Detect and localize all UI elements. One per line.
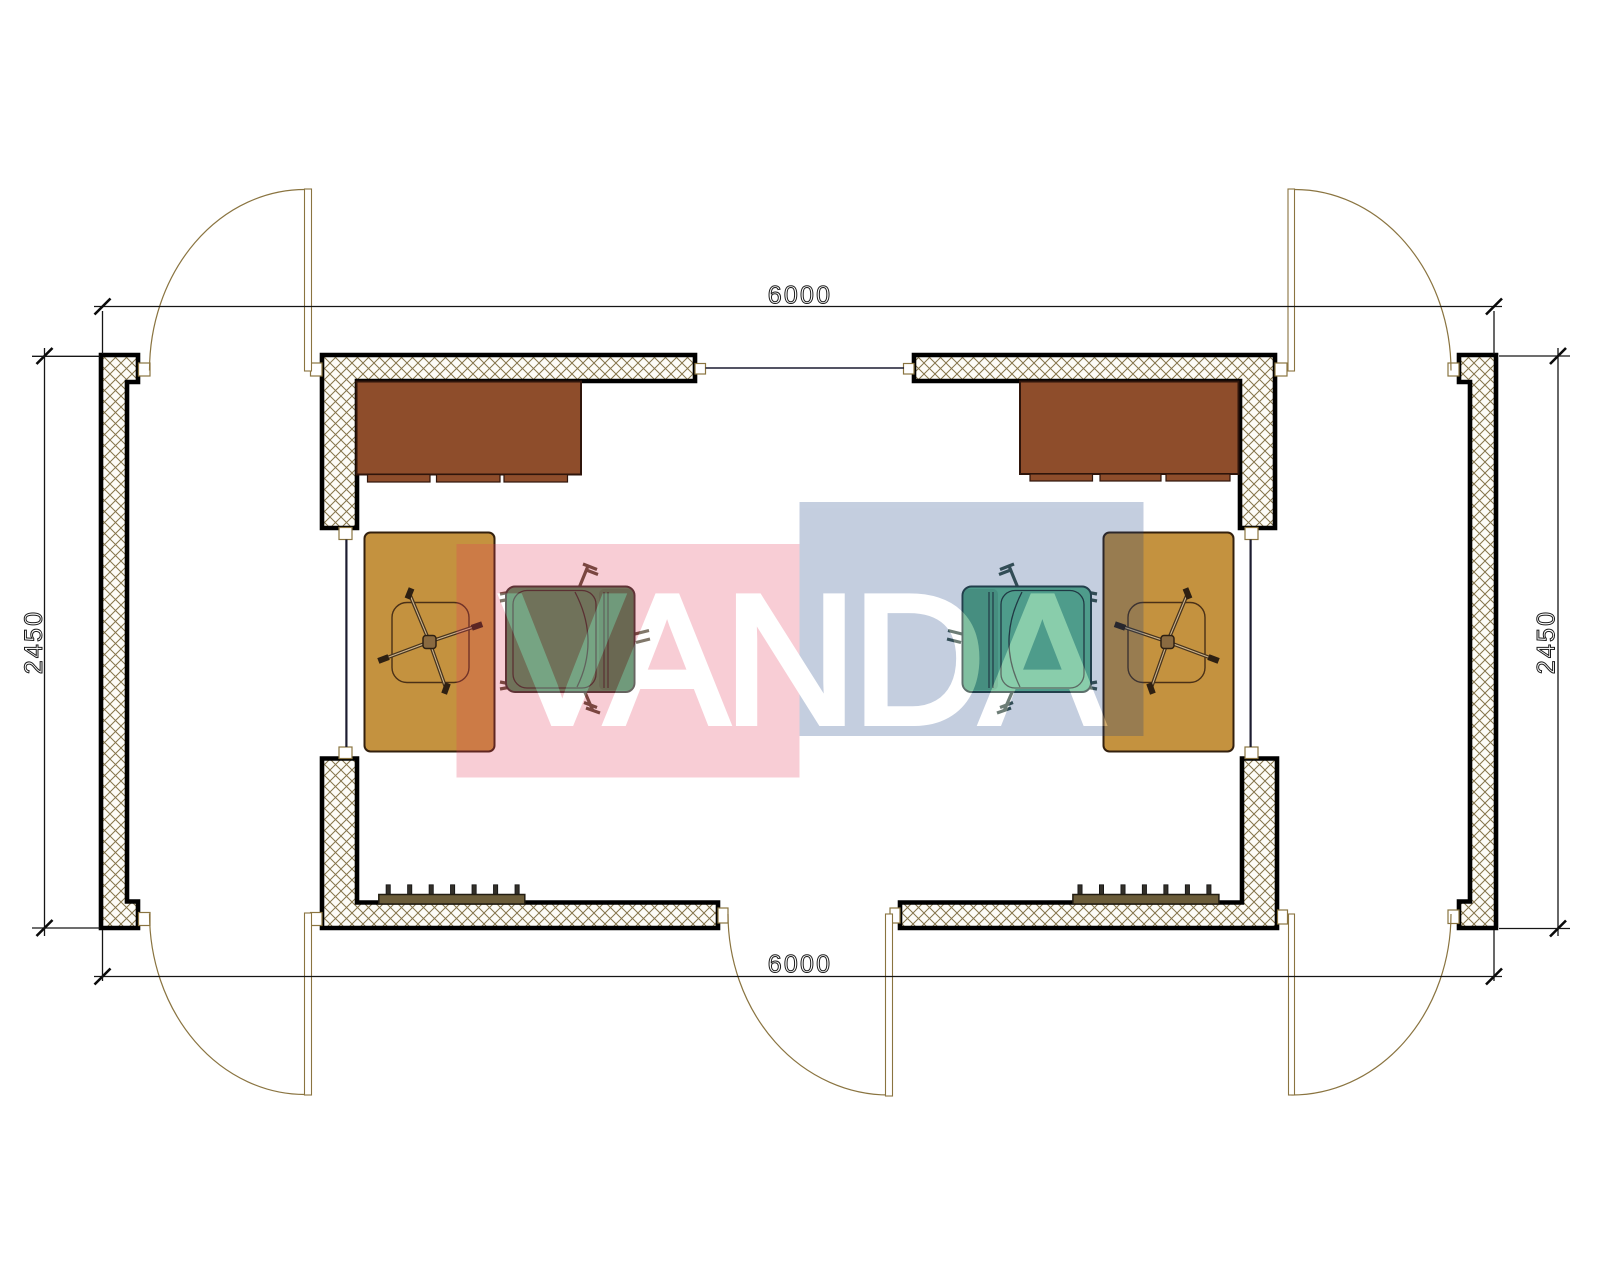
svg-text:6000: 6000 [768, 281, 832, 309]
svg-text:2450: 2450 [20, 610, 48, 674]
svg-text:2450: 2450 [1533, 610, 1561, 674]
svg-text:VANDA: VANDA [501, 556, 1104, 762]
svg-text:6000: 6000 [768, 950, 832, 978]
